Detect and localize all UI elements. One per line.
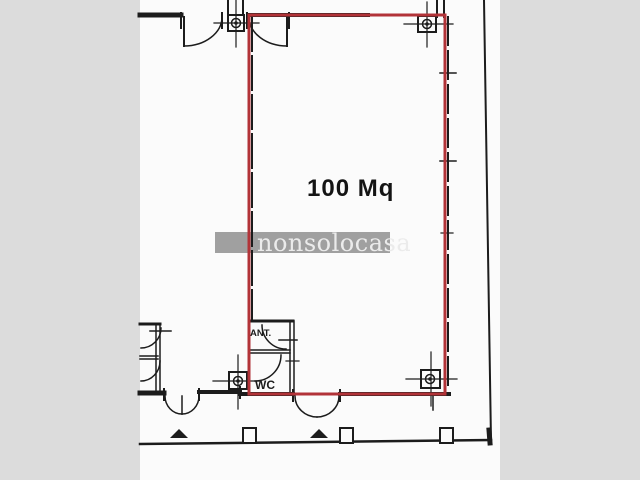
column-base — [340, 428, 353, 443]
floorplan-drawing: nonsolocasa — [0, 0, 640, 480]
column-base — [243, 428, 256, 443]
wall-corner — [489, 430, 490, 443]
room-label-wc: WC — [255, 378, 275, 392]
column-base — [440, 428, 453, 443]
watermark: nonsolocasa — [215, 229, 411, 257]
watermark-text: nonsolocasa — [257, 229, 411, 257]
floorplan-scan: nonsolocasa — [0, 0, 640, 480]
room-label-ant: ANT. — [250, 328, 271, 339]
area-label: 100 Mq — [307, 175, 394, 202]
